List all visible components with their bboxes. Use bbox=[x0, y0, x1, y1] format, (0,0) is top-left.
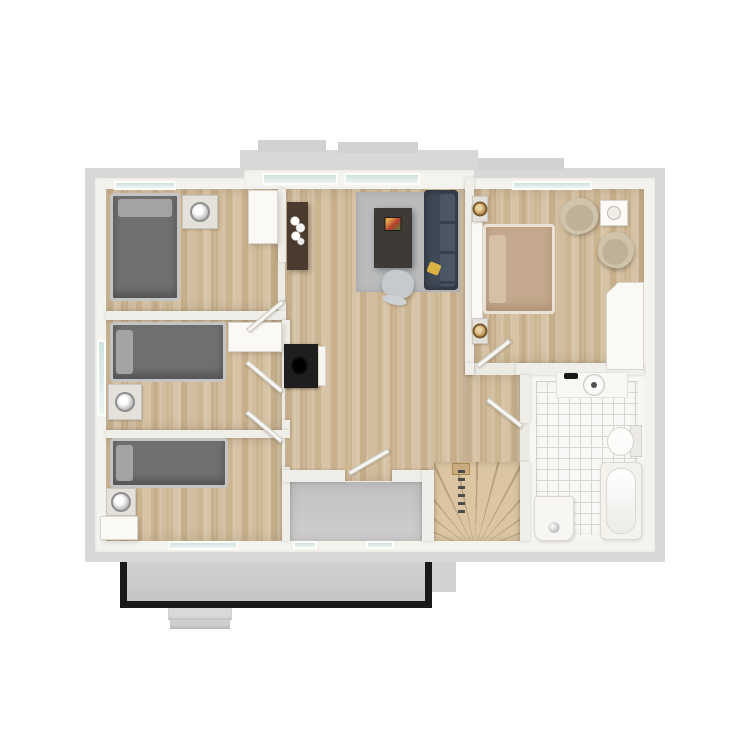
balcony-step-upper bbox=[168, 608, 232, 620]
roof-bay-step-left bbox=[258, 140, 326, 152]
bed-master bbox=[483, 224, 555, 314]
wall-bed2-bed3 bbox=[106, 430, 290, 438]
roof-bay-step-right bbox=[338, 142, 418, 153]
floor-loggia bbox=[290, 482, 422, 541]
fireplace-side-panel bbox=[318, 346, 326, 386]
window-master-top bbox=[512, 181, 592, 190]
window-bedroom1-top bbox=[114, 181, 176, 190]
wall-loggia-top-left bbox=[282, 470, 345, 482]
bed-single-2 bbox=[110, 322, 226, 382]
toilet bbox=[606, 424, 642, 458]
bed-single-1 bbox=[110, 193, 180, 301]
wall-loggia-stairs bbox=[422, 470, 434, 541]
wardrobe-bedroom1 bbox=[248, 190, 278, 244]
shower-fitting bbox=[564, 373, 578, 379]
desk-living bbox=[374, 208, 412, 268]
sideboard-living bbox=[287, 202, 308, 270]
floor-plan bbox=[0, 0, 751, 751]
sofa-living bbox=[424, 190, 458, 290]
nightstand-master-bottom bbox=[472, 318, 488, 344]
window-bedroom2-left bbox=[97, 340, 106, 416]
stair-railing bbox=[458, 470, 465, 514]
balcony-step-lower bbox=[170, 620, 230, 629]
wall-bed1-living-upper bbox=[278, 189, 286, 262]
wall-bath-left-lower bbox=[520, 462, 530, 541]
side-table-master bbox=[600, 200, 628, 226]
wall-fireplace bbox=[284, 344, 318, 388]
wall-bath-left-upper bbox=[520, 375, 530, 423]
window-bedroom3-bottom bbox=[168, 541, 238, 550]
headboard-master bbox=[471, 206, 483, 332]
dresser-bedroom3 bbox=[100, 516, 138, 540]
shower-drain bbox=[583, 374, 605, 396]
wall-master-bath-corner bbox=[465, 363, 474, 375]
bathtub bbox=[600, 462, 642, 540]
wardrobe-master bbox=[606, 282, 644, 370]
window-loggia-bottom-right bbox=[366, 541, 394, 549]
roof-shoulder-right bbox=[478, 158, 564, 170]
bed-single-3 bbox=[110, 438, 228, 488]
balcony bbox=[120, 562, 432, 608]
window-loggia-bottom-left bbox=[293, 541, 317, 549]
nightstand-2 bbox=[108, 384, 142, 420]
nightstand-master-top bbox=[472, 196, 488, 222]
roof-stub-bottom bbox=[430, 562, 456, 592]
nightstand-1 bbox=[182, 195, 218, 229]
floor-plan-canvas bbox=[0, 0, 751, 751]
window-living-bay-right bbox=[344, 173, 420, 185]
nightstand-3 bbox=[106, 488, 136, 516]
floor-staircase bbox=[434, 462, 520, 541]
sink bbox=[534, 496, 574, 541]
wall-bed2-hall-lower bbox=[282, 420, 290, 430]
roof-bay-band bbox=[240, 150, 478, 170]
window-living-bay-left bbox=[262, 173, 338, 185]
